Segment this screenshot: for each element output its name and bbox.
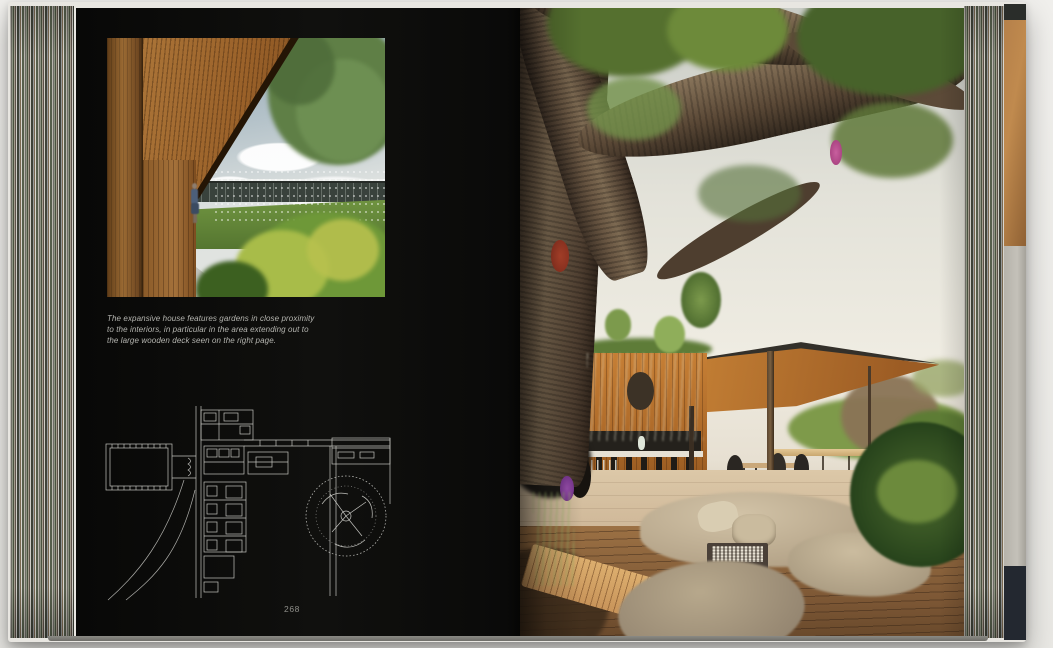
cover-wood-area	[1004, 20, 1026, 246]
page-gutter-shadow	[520, 8, 966, 636]
person-torso	[191, 189, 198, 204]
person-skirt	[191, 203, 199, 214]
walking-person	[189, 183, 200, 223]
right-page-photo	[520, 8, 966, 636]
book-cover-right	[1004, 4, 1026, 640]
left-page: The expansive house features gardens in …	[76, 8, 520, 636]
page-number: 268	[266, 604, 318, 614]
plan-tree	[306, 476, 386, 556]
cover-concrete-area	[1004, 246, 1026, 566]
open-book: The expansive house features gardens in …	[8, 2, 1026, 642]
floor-plan-drawing	[100, 404, 400, 602]
wood-wall	[143, 160, 196, 297]
page-fore-edge-right	[964, 6, 1006, 638]
photo-caption: The expansive house features gardens in …	[107, 313, 321, 346]
person-legs	[193, 214, 197, 223]
driveway-curves	[108, 480, 195, 600]
page-fore-edge-left	[10, 6, 74, 638]
stage: { "left_page": { "caption": "The expansi…	[0, 0, 1053, 648]
cover-dark-area	[1004, 566, 1026, 640]
book-bottom-edge	[48, 636, 988, 641]
wood-column	[107, 38, 143, 297]
garden-house-photo	[107, 38, 385, 297]
